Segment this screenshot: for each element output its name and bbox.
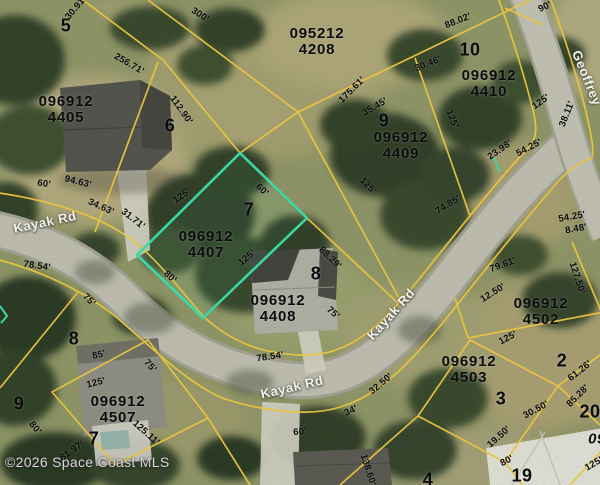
aerial-map-background — [0, 0, 600, 485]
plat-map[interactable]: 30.91'300'256.71'112.90'88.02'30.46'90'1… — [0, 0, 600, 485]
copyright-watermark: ©2026 Space Coast MLS — [5, 454, 169, 470]
